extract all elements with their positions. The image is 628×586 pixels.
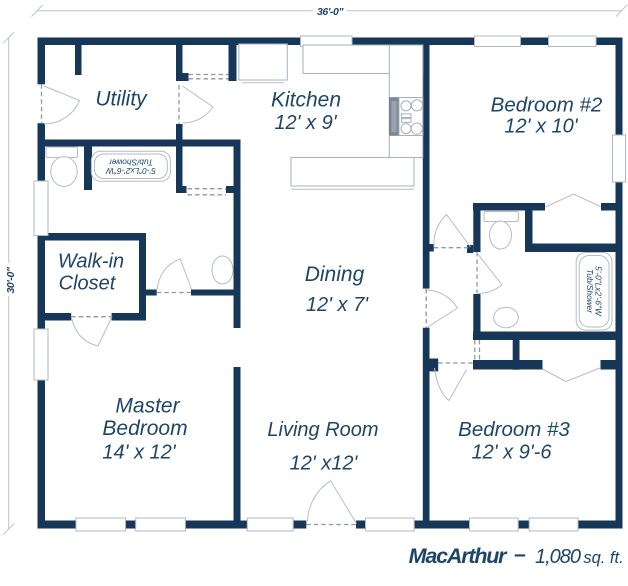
svg-text:Bedroom #2: Bedroom #2 — [491, 94, 603, 117]
svg-text:12' x 10': 12' x 10' — [504, 116, 578, 138]
svg-text:Tub/Shower: Tub/Shower — [585, 269, 595, 314]
svg-text:–: – — [514, 543, 526, 566]
svg-text:14' x 12': 14' x 12' — [102, 442, 176, 464]
svg-text:Kitchen: Kitchen — [271, 89, 341, 112]
svg-text:36'-0": 36'-0" — [317, 6, 345, 18]
svg-text:Tub/Shower: Tub/Shower — [108, 157, 153, 167]
svg-text:Dining: Dining — [305, 263, 365, 286]
svg-text:Walk-in: Walk-in — [58, 251, 124, 273]
svg-text:Closet: Closet — [59, 273, 117, 295]
svg-text:12' x 7': 12' x 7' — [306, 294, 369, 316]
svg-text:30'-0": 30'-0" — [5, 266, 17, 294]
svg-text:Bedroom: Bedroom — [102, 417, 187, 440]
svg-text:Utility: Utility — [95, 88, 148, 111]
svg-text:sq. ft.: sq. ft. — [583, 549, 623, 567]
svg-text:12' x 9'-6: 12' x 9'-6 — [472, 442, 553, 464]
svg-text:12' x 9': 12' x 9' — [274, 112, 337, 134]
svg-text:Bedroom #3: Bedroom #3 — [458, 418, 570, 441]
svg-text:12' x12': 12' x12' — [290, 453, 359, 475]
svg-text:Living Room: Living Room — [267, 419, 378, 441]
svg-text:1,080: 1,080 — [535, 546, 581, 568]
svg-text:MacArthur: MacArthur — [409, 544, 509, 568]
svg-text:Master: Master — [115, 395, 180, 418]
